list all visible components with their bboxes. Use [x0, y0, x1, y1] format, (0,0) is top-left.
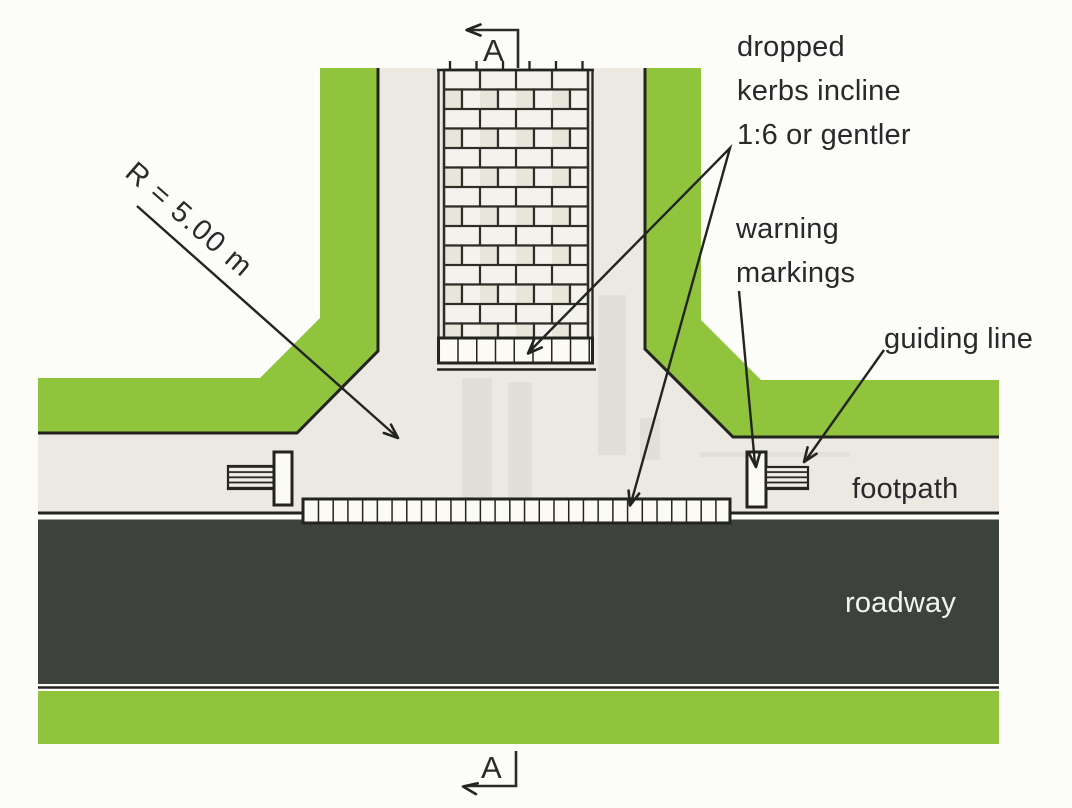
- label-warning-markings: warning markings: [736, 207, 855, 295]
- section-arrow-bottom: [462, 781, 478, 794]
- section-letter-top: A: [483, 35, 504, 66]
- warning-tile-left: [274, 452, 292, 505]
- label-roadway: roadway: [845, 581, 956, 625]
- verge-bottom: [38, 691, 999, 744]
- brick-paving: [444, 70, 588, 338]
- guiding-line-hatch-left: [228, 466, 274, 489]
- warning-tile-right: [747, 452, 766, 507]
- label-guiding-line: guiding line: [884, 317, 1033, 361]
- section-letter-bottom: A: [481, 752, 502, 783]
- tactile-paving-path: [437, 61, 596, 370]
- label-footpath: footpath: [852, 467, 958, 511]
- label-dropped-kerbs: dropped kerbs incline 1:6 or gentler: [737, 25, 911, 157]
- plan-diagram: dropped kerbs incline 1:6 or gentler war…: [0, 0, 1072, 808]
- kerb-warning-strip: [303, 499, 730, 523]
- guiding-line-hatch-right: [766, 467, 808, 489]
- diagram-canvas: [0, 0, 1072, 808]
- dropped-kerb-strip: [439, 338, 593, 363]
